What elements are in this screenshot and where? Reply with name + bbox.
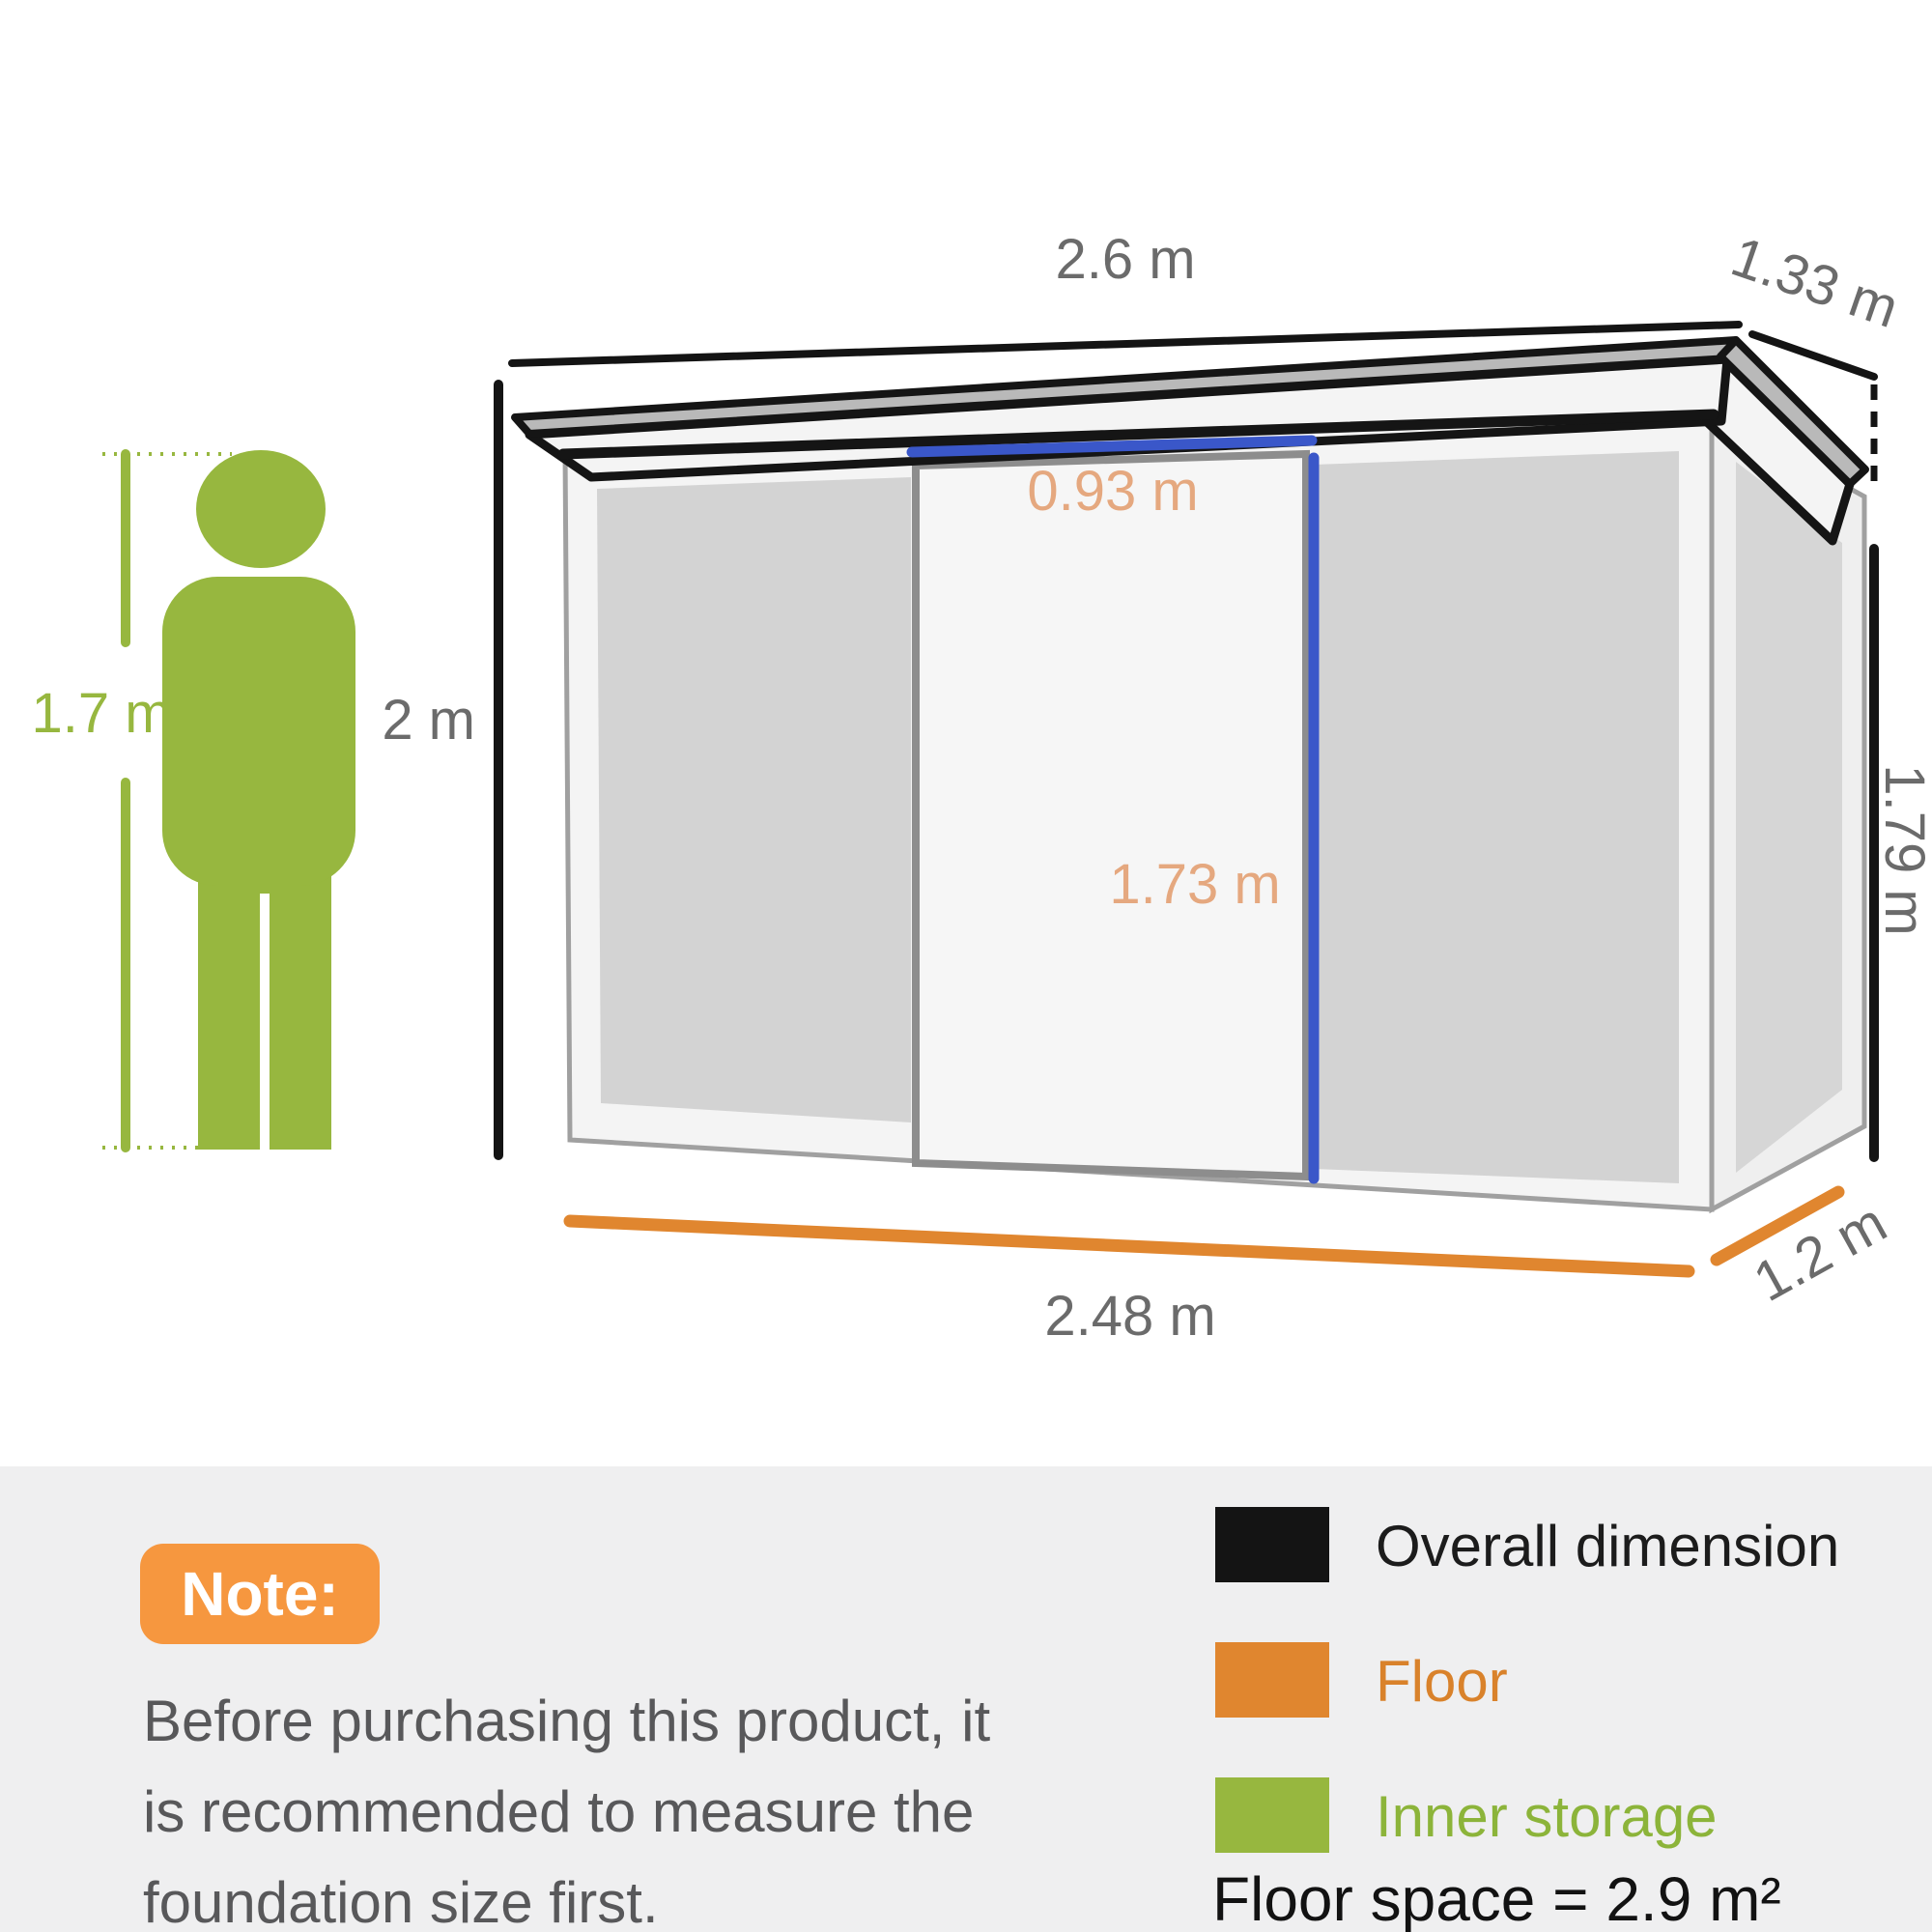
- legend-swatch-inner-storage: [1215, 1777, 1329, 1853]
- note-line-1: Before purchasing this product, it: [143, 1689, 990, 1753]
- roof-width-label: 2.6 m: [1055, 228, 1195, 291]
- overall-height-label: 2 m: [382, 689, 475, 752]
- person-figure: 1.7 m: [31, 450, 355, 1150]
- legend-label-inner-storage: Inner storage: [1376, 1784, 1718, 1849]
- diagram-svg: 1.7 m 2.6 m 1.33 m 2 m: [0, 0, 1932, 1932]
- roof-depth-label: 1.33 m: [1723, 225, 1906, 340]
- wall-height-label: 1.79 m: [1873, 764, 1932, 935]
- note-line-2: is recommended to measure the: [143, 1779, 974, 1844]
- shed-door: [916, 454, 1306, 1177]
- side-wall-panel: [1736, 462, 1842, 1173]
- person-body: [162, 577, 355, 886]
- door-height-label: 1.73 m: [1109, 853, 1280, 916]
- front-wall-left-panel: [597, 477, 911, 1122]
- person-head: [196, 450, 326, 568]
- floor-space-label: Floor space = 2.9 m²: [1212, 1864, 1781, 1932]
- floor-width-line: [570, 1221, 1689, 1271]
- legend-swatch-overall-dimension: [1215, 1507, 1329, 1582]
- floor-depth-label: 1.2 m: [1744, 1191, 1896, 1314]
- shed-diagram: 2.6 m 1.33 m 2 m 0.93 m 1.73 m 1.79 m: [382, 225, 1932, 1348]
- legend-swatch-floor: [1215, 1642, 1329, 1718]
- floor-width-label: 2.48 m: [1044, 1285, 1215, 1348]
- note-badge-label: Note:: [181, 1559, 339, 1629]
- legend-label-floor: Floor: [1376, 1649, 1508, 1714]
- door-width-label: 0.93 m: [1027, 460, 1198, 523]
- note-line-3: foundation size first.: [143, 1870, 659, 1932]
- product-dimension-diagram: 1.7 m 2.6 m 1.33 m 2 m: [0, 0, 1932, 1932]
- legend-label-overall-dimension: Overall dimension: [1376, 1514, 1839, 1578]
- person-leg-divider: [260, 894, 270, 1150]
- person-height-label: 1.7 m: [31, 682, 171, 745]
- front-wall-right-panel: [1314, 451, 1679, 1183]
